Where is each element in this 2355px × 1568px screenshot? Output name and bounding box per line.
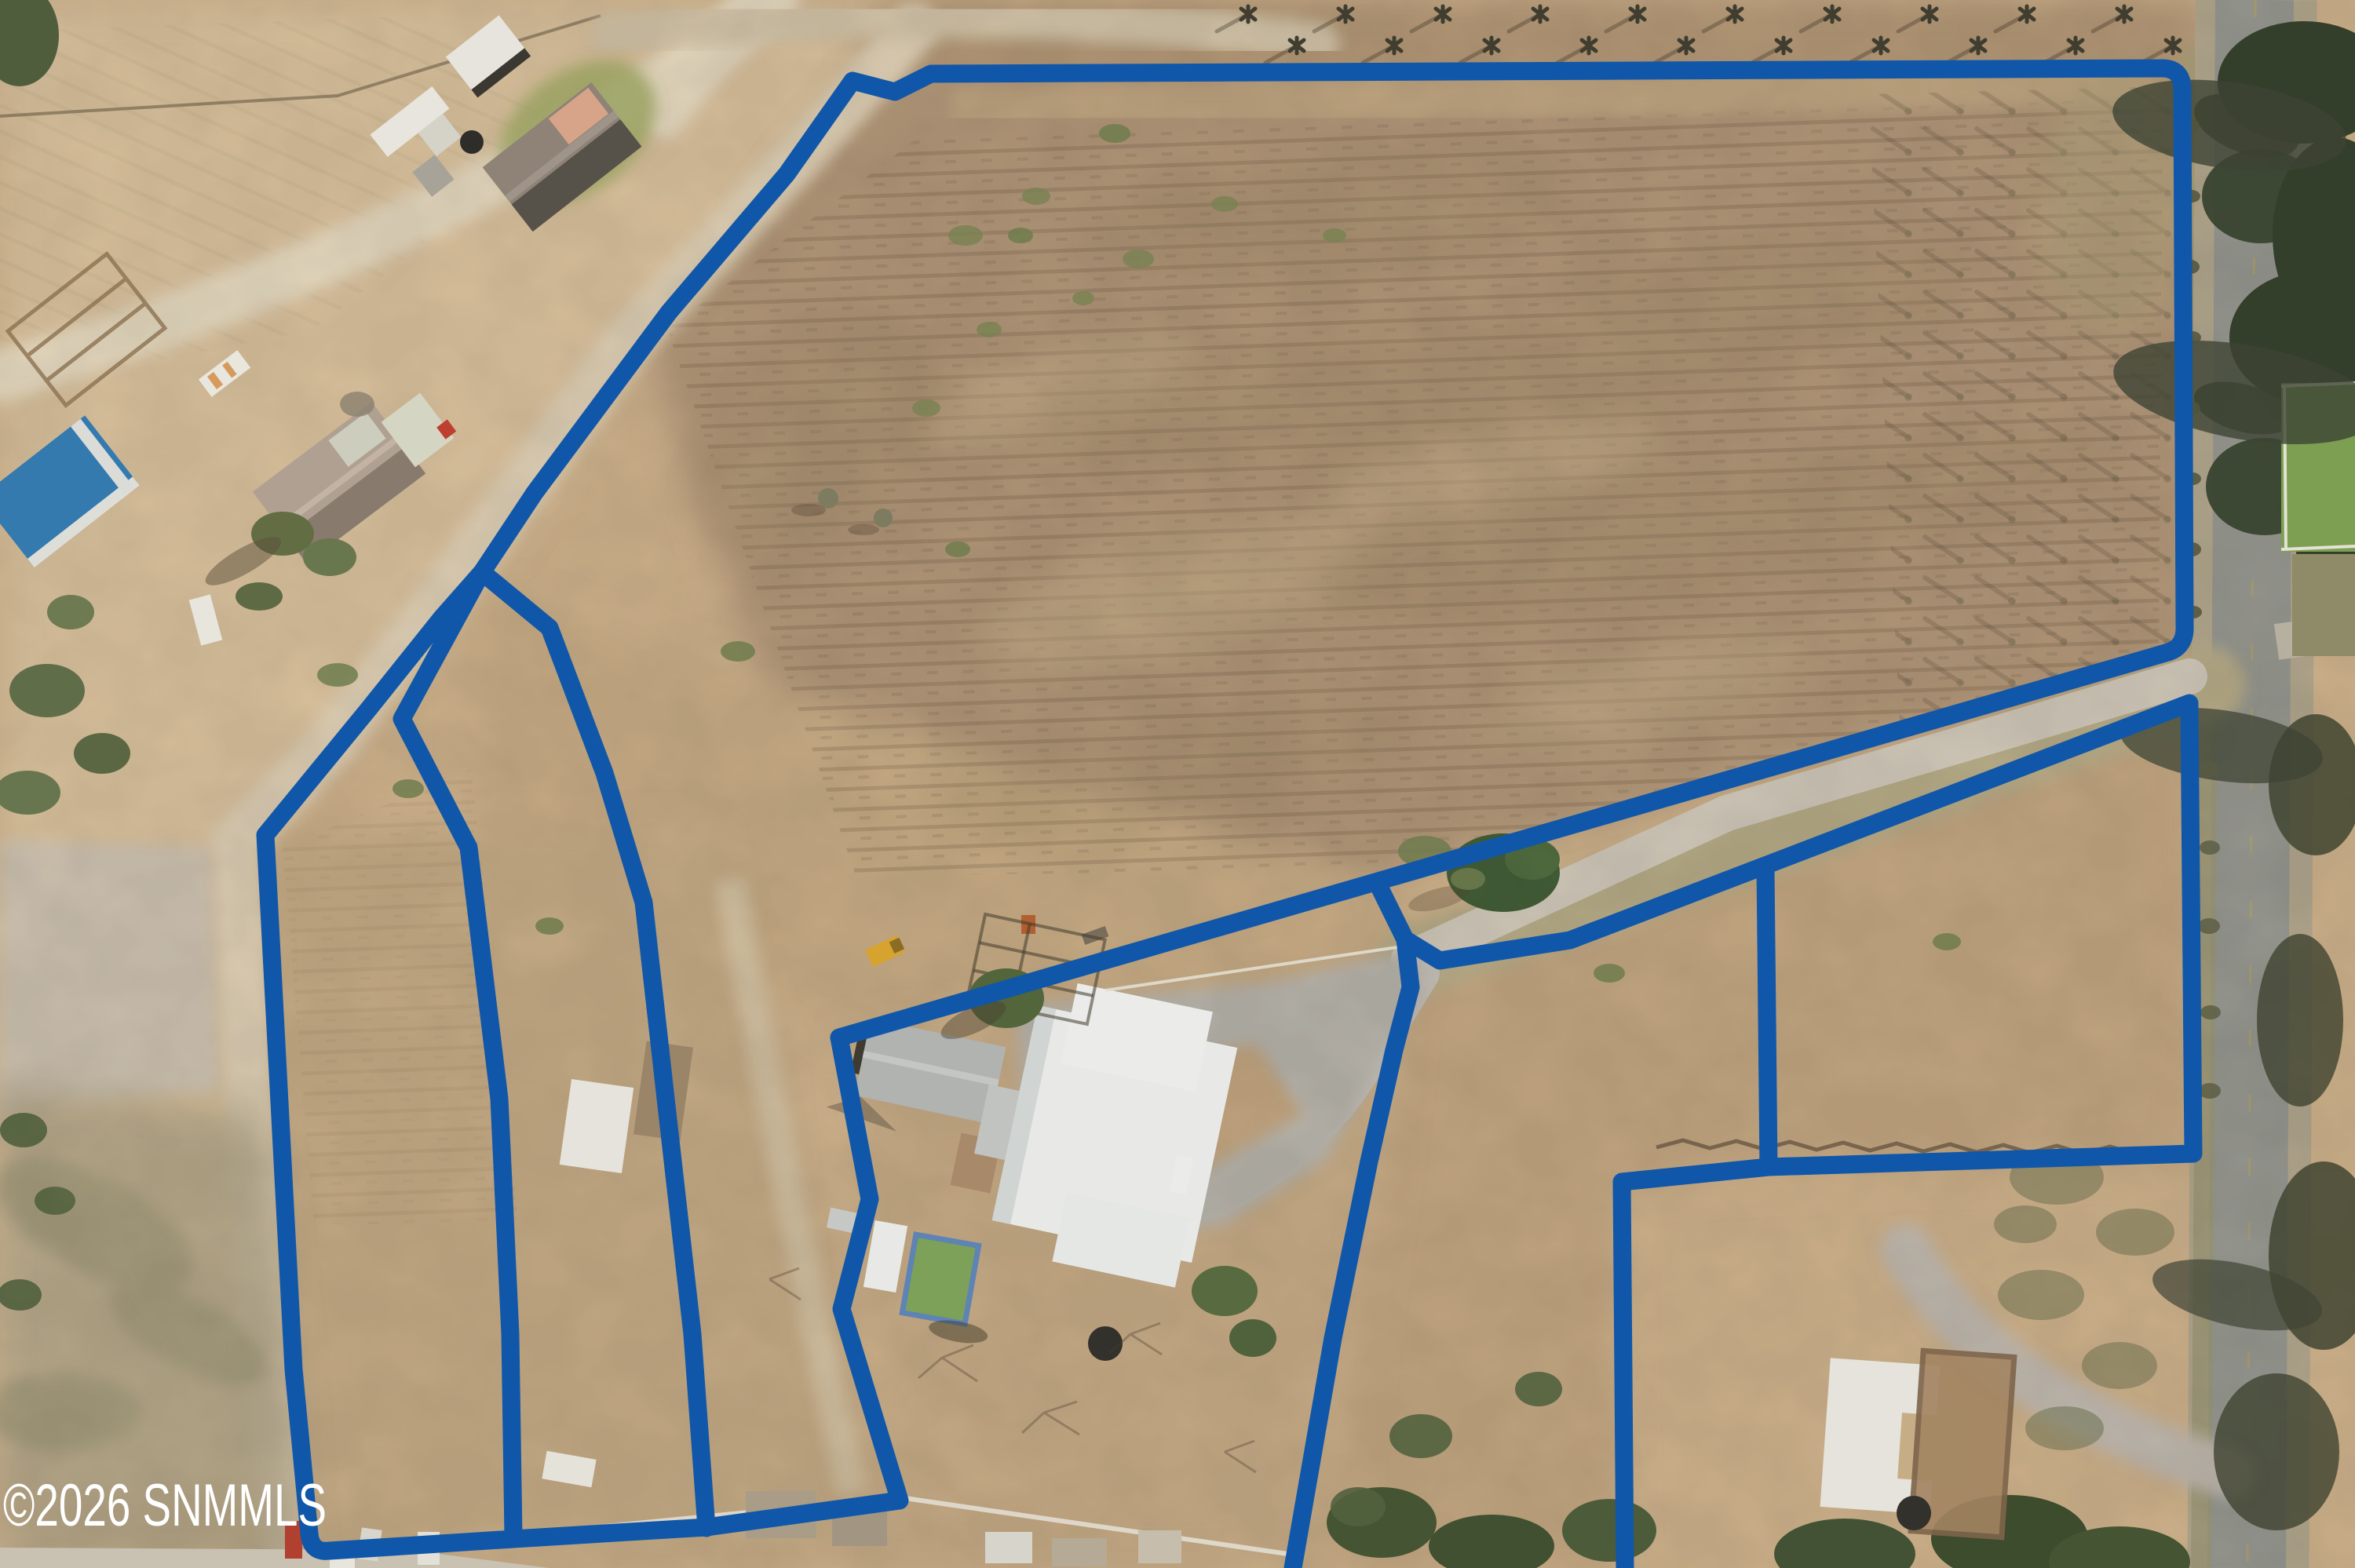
- svg-text:©2026 SNMMLS: ©2026 SNMMLS: [3, 1472, 327, 1539]
